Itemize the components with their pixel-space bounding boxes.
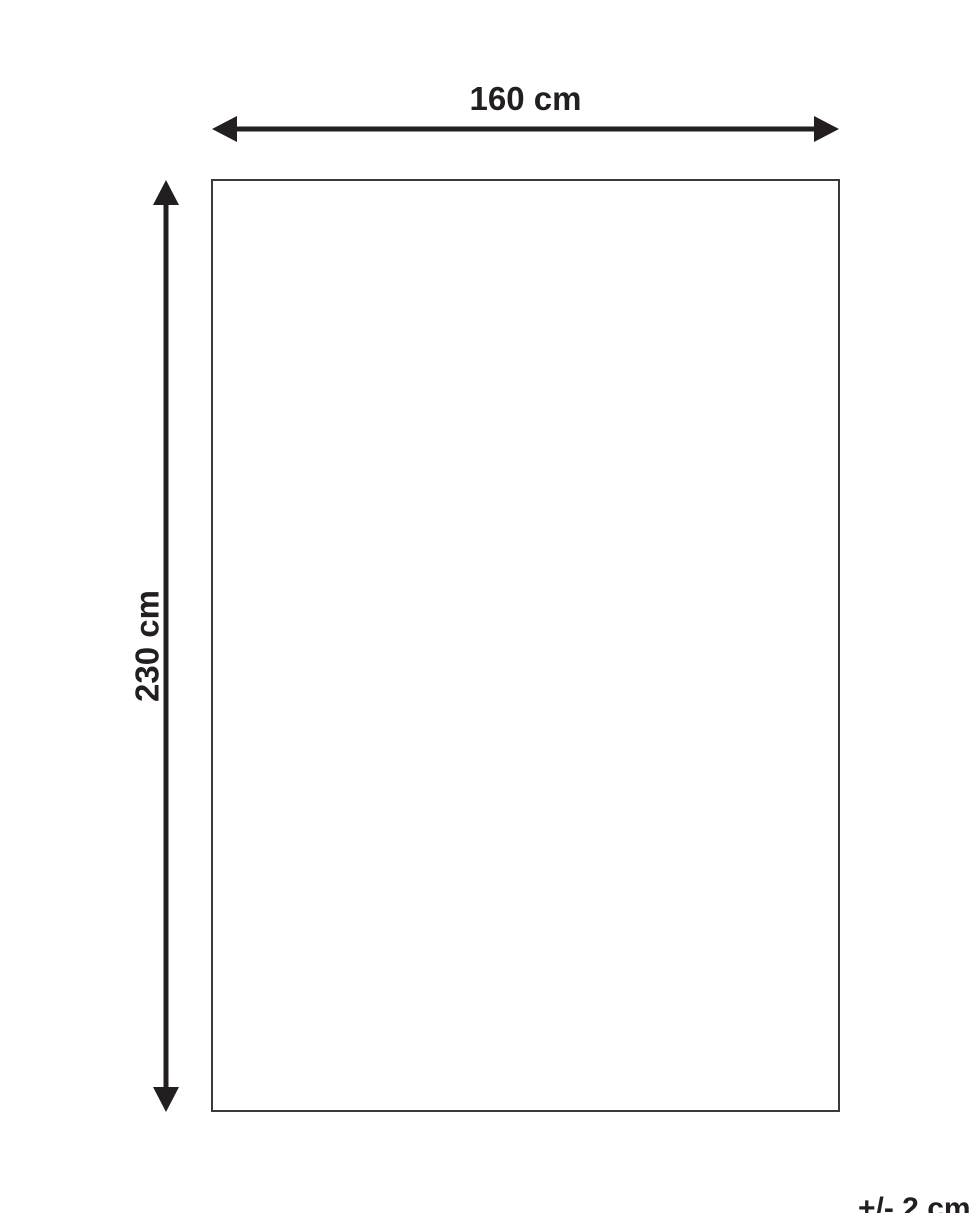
horizontal-dimension-arrow-icon (212, 116, 839, 142)
product-outline-rectangle (211, 179, 840, 1112)
dimension-diagram: 160 cm 230 cm +/- 2 cm (0, 0, 970, 1213)
height-dimension-label: 230 cm (131, 590, 164, 702)
tolerance-label: +/- 2 cm (858, 1191, 970, 1213)
